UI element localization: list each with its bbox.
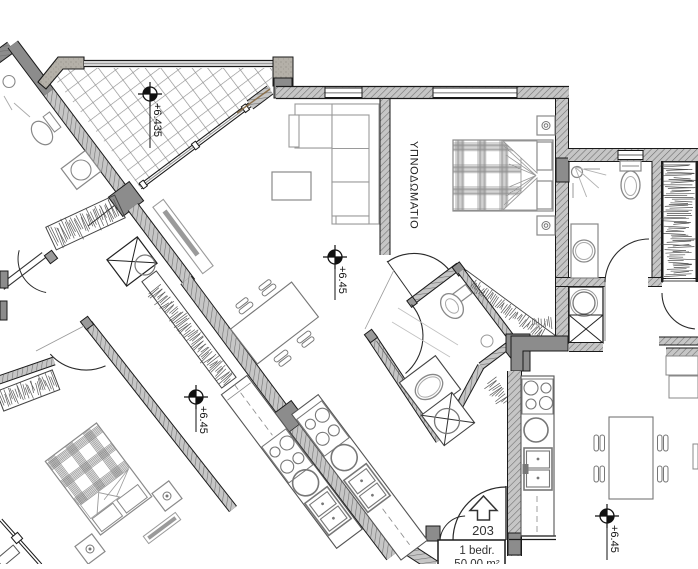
svg-text:203: 203 [472, 523, 494, 538]
svg-text:1 bedr.: 1 bedr. [459, 545, 494, 557]
svg-text:ΥΠΝΟΔΩΜΑΤΙΟ: ΥΠΝΟΔΩΜΑΤΙΟ [408, 141, 420, 229]
svg-text:+6.45: +6.45 [197, 406, 209, 434]
svg-text:50.00 m²: 50.00 m² [454, 559, 500, 565]
svg-text:+6.45: +6.45 [608, 525, 620, 553]
svg-text:+6.435: +6.435 [151, 103, 163, 137]
svg-text:+6.45: +6.45 [336, 266, 348, 294]
